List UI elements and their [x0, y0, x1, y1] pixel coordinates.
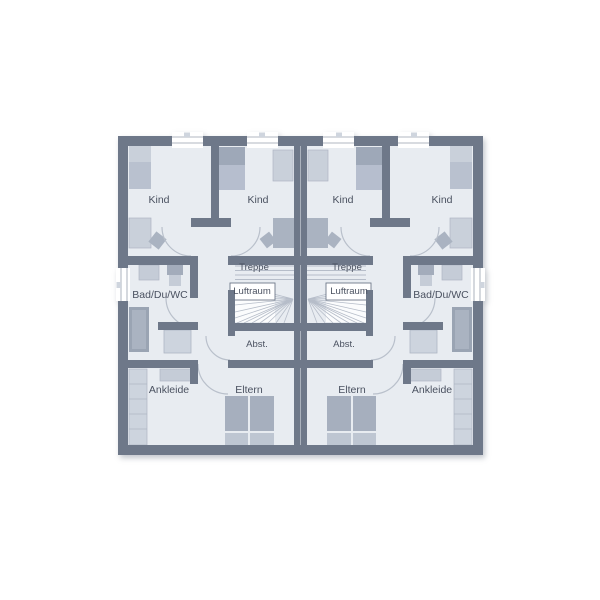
floor-plan-svg: Kind Kind Bad/Du/WC Treppe Luftraum Abst… [0, 0, 600, 600]
label-kind-2-right: Kind [431, 194, 452, 206]
label-dressing-right: Ankleide [412, 384, 452, 396]
floor-plan-canvas: Kind Kind Bad/Du/WC Treppe Luftraum Abst… [0, 0, 600, 600]
label-void-left: Luftraum [233, 286, 271, 297]
label-kind-1-right: Kind [332, 194, 353, 206]
label-parents-right: Eltern [338, 384, 366, 396]
label-parents-left: Eltern [235, 384, 263, 396]
label-storage-left: Abst. [246, 339, 268, 350]
label-dressing-left: Ankleide [149, 384, 189, 396]
label-kind-1-left: Kind [148, 194, 169, 206]
label-void-right: Luftraum [330, 286, 368, 297]
floor-plan: Kind Kind Bad/Du/WC Treppe Luftraum Abst… [116, 132, 485, 455]
label-stairs-right: Treppe [332, 262, 362, 273]
label-bath-left: Bad/Du/WC [132, 289, 188, 301]
label-kind-2-left: Kind [247, 194, 268, 206]
label-storage-right: Abst. [333, 339, 355, 350]
label-stairs-left: Treppe [239, 262, 269, 273]
label-bath-right: Bad/Du/WC [413, 289, 469, 301]
